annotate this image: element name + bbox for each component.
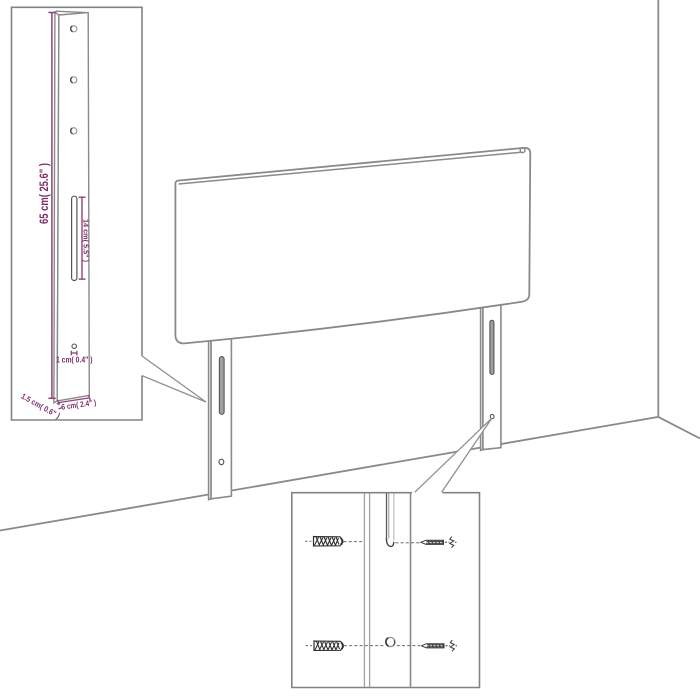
- svg-text:1 cm( 0.4" ): 1 cm( 0.4" ): [56, 355, 93, 364]
- svg-text:14 cm( 5.5" ): 14 cm( 5.5" ): [82, 219, 89, 262]
- svg-text:65 cm( 25.6" ): 65 cm( 25.6" ): [39, 163, 51, 224]
